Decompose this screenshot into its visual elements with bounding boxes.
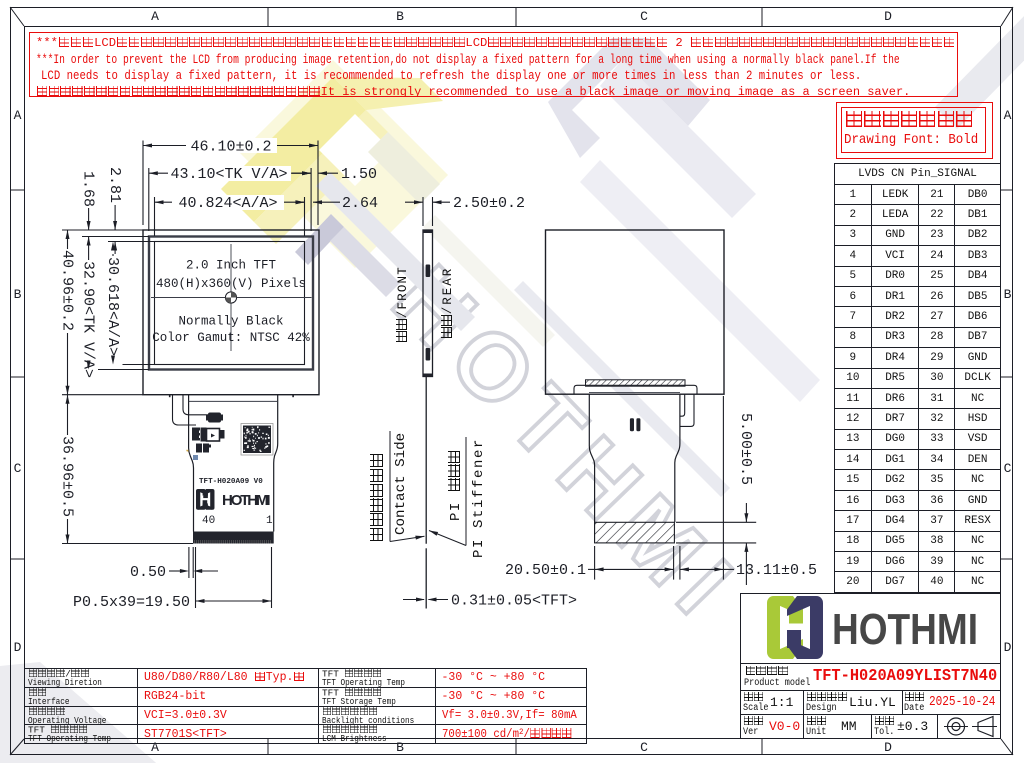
svg-text:P0.5x39=19.50: P0.5x39=19.50 [73, 594, 190, 611]
svg-text:5.00±0.5: 5.00±0.5 [737, 413, 754, 485]
svg-text:40.824<A/A>: 40.824<A/A> [178, 195, 277, 212]
svg-text:0.50: 0.50 [130, 564, 166, 581]
svg-text:2.64: 2.64 [342, 195, 378, 212]
svg-text:1: 1 [266, 515, 273, 527]
svg-text:HOTHMI: HOTHMI [222, 492, 270, 509]
svg-text:40.96±0.2: 40.96±0.2 [58, 250, 75, 331]
svg-text:TFT-H020A09 V0: TFT-H020A09 V0 [199, 478, 263, 486]
svg-text:HOTHMI: HOTHMI [832, 605, 978, 654]
svg-text:2.0 Inch TFT: 2.0 Inch TFT [186, 259, 277, 273]
svg-text:43.10<TK V/A>: 43.10<TK V/A> [170, 166, 287, 183]
svg-text:40: 40 [202, 515, 215, 527]
svg-text:32.90<TK V/A>: 32.90<TK V/A> [79, 261, 96, 378]
svg-text:*: * [186, 449, 193, 452]
svg-text:Color Gamut: NTSC 42%: Color Gamut: NTSC 42% [152, 331, 310, 345]
svg-text:1.68: 1.68 [79, 171, 96, 207]
svg-text:30.618<A/A>: 30.618<A/A> [104, 257, 121, 356]
svg-text:1.50: 1.50 [341, 166, 377, 183]
svg-text:0.31±0.05<TFT>: 0.31±0.05<TFT> [451, 592, 577, 609]
svg-text:480(H)x360(V) Pixels: 480(H)x360(V) Pixels [156, 277, 306, 291]
svg-text:36.96±0.5: 36.96±0.5 [58, 436, 75, 517]
svg-text:46.10±0.2: 46.10±0.2 [190, 138, 271, 155]
svg-text:2.50±0.2: 2.50±0.2 [453, 195, 525, 212]
svg-text:20.50±0.1: 20.50±0.1 [505, 562, 586, 579]
svg-text:2.81: 2.81 [106, 167, 123, 203]
svg-text:Normally Black: Normally Black [178, 315, 283, 329]
svg-text:13.11±0.5: 13.11±0.5 [736, 562, 817, 579]
